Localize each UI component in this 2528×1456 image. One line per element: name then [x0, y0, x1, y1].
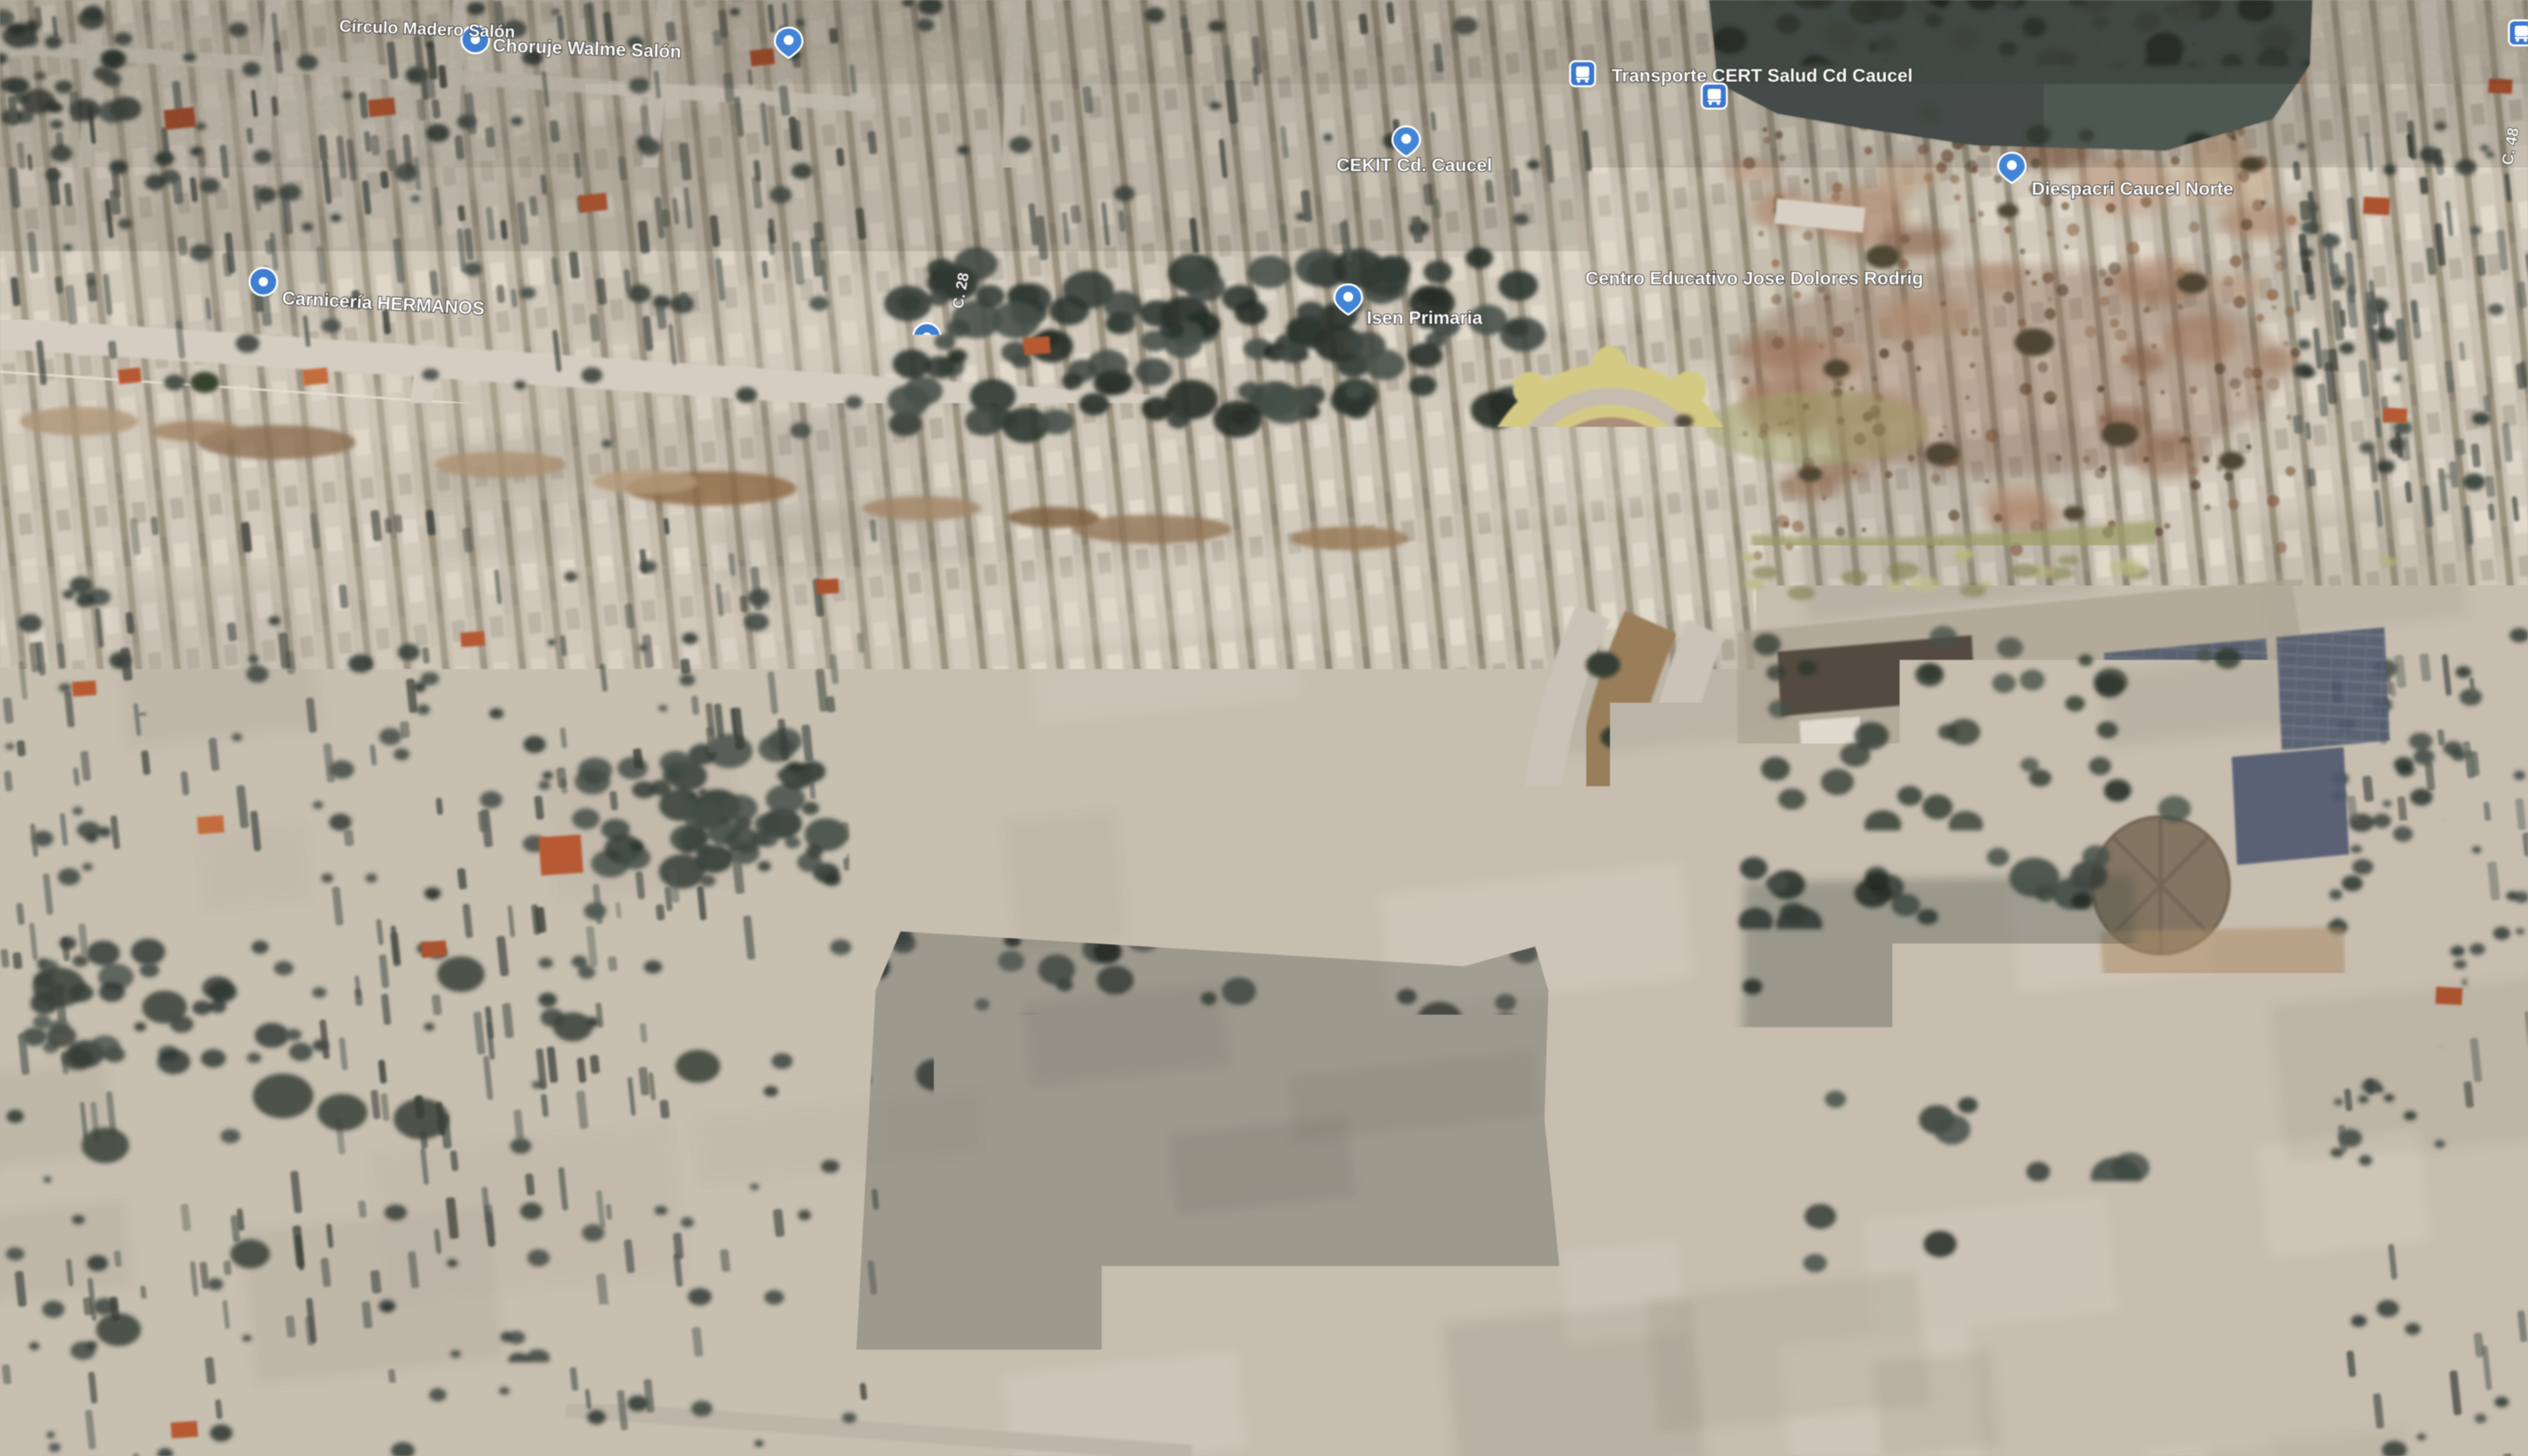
svg-text:C. 61: C. 61 [625, 766, 669, 788]
svg-text:C. 61: C. 61 [317, 748, 361, 769]
svg-text:CEKIT Cd. Caucel: CEKIT Cd. Caucel [1336, 155, 1492, 175]
svg-text:Calle 59: Calle 59 [1254, 538, 1325, 561]
svg-text:Marlin El sabor del Mar Caribe: Marlin El sabor del Mar Caribe [876, 713, 1140, 733]
svg-text:COMPLEJO EDUCATIVO PROFE: COMPLEJO EDUCATIVO PROFE [1794, 716, 2099, 738]
svg-text:Diespacri Caucel Norte: Diespacri Caucel Norte [2032, 178, 2234, 199]
svg-text:Isen Primaria: Isen Primaria [1367, 307, 1483, 328]
svg-text:TEC HOME PC . Laptops y Smartp: TEC HOME PC . Laptops y Smartphones [776, 1000, 1154, 1022]
svg-text:Calle 59: Calle 59 [500, 350, 571, 373]
svg-text:Escuela Primaria: Escuela Primaria [2336, 1272, 2485, 1295]
svg-text:C. 67: C. 67 [292, 1365, 336, 1387]
svg-text:Image © 2024 Airbus: Image © 2024 Airbus [1218, 1375, 1440, 1402]
svg-text:C. 65: C. 65 [298, 1072, 341, 1093]
svg-text:Agárrame el Kiki: Agárrame el Kiki [1745, 460, 1890, 481]
svg-text:C. 67: C. 67 [877, 1436, 920, 1456]
svg-text:Calle 59: Calle 59 [849, 397, 920, 421]
svg-text:C. 34: C. 34 [2350, 903, 2393, 925]
svg-text:Transporte CERT Salud Cd Cauce: Transporte CERT Salud Cd Caucel [1612, 65, 1912, 86]
svg-text:Calle 59: Calle 59 [606, 526, 676, 550]
svg-text:C. 65: C. 65 [456, 1131, 499, 1153]
svg-text:© 2023 Google: © 2023 Google [1248, 1336, 1408, 1363]
svg-text:Acuario Mi Blue Fish: Acuario Mi Blue Fish [258, 1049, 440, 1072]
svg-text:Centro Educativo Jose Dolores: Centro Educativo Jose Dolores Rodrigue..… [1585, 268, 1960, 288]
svg-text:C. 63: C. 63 [776, 931, 819, 952]
svg-text:Glorieta Cronista Deportivo: Glorieta Cronista Deportivo [1626, 502, 1867, 523]
svg-text:Calle 59: Calle 59 [1024, 523, 1095, 547]
svg-text:Salón de niñas Laura Magaña: Salón de niñas Laura Magaña [531, 1432, 791, 1456]
svg-text:C. 63: C. 63 [328, 903, 371, 925]
